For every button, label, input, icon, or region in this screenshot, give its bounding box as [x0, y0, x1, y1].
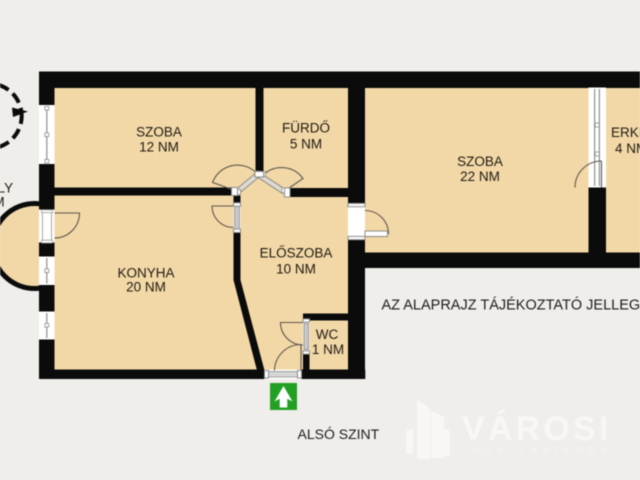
svg-text:4 NM: 4 NM	[615, 141, 640, 156]
svg-text:ALSÓ SZINT: ALSÓ SZINT	[298, 426, 380, 442]
svg-text:12 NM: 12 NM	[139, 139, 179, 154]
svg-text:ERKÉLY: ERKÉLY	[0, 180, 13, 195]
svg-text:10 NM: 10 NM	[276, 261, 316, 276]
svg-text:WC: WC	[316, 327, 339, 342]
svg-text:INGATLANIRODA: INGATLANIRODA	[464, 445, 613, 456]
svg-text:SZOBA: SZOBA	[457, 154, 503, 169]
svg-text:FÜRDŐ: FÜRDŐ	[282, 121, 330, 136]
svg-text:VÁROSI: VÁROSI	[462, 410, 612, 448]
svg-text:ELŐSZOBA: ELŐSZOBA	[260, 245, 333, 260]
svg-text:1 NM: 1 NM	[312, 342, 344, 357]
svg-text:22 NM: 22 NM	[460, 169, 500, 184]
svg-text:1 NM: 1 NM	[0, 194, 5, 209]
svg-text:5 NM: 5 NM	[290, 136, 322, 151]
svg-text:ERKÉLY: ERKÉLY	[611, 125, 640, 140]
svg-text:20 NM: 20 NM	[126, 280, 166, 295]
svg-text:AZ ALAPRAJZ TÁJÉKOZTATÓ JELLEG: AZ ALAPRAJZ TÁJÉKOZTATÓ JELLEGŰ!	[382, 297, 640, 314]
svg-text:KONYHA: KONYHA	[117, 265, 174, 280]
svg-text:SZOBA: SZOBA	[136, 124, 182, 139]
